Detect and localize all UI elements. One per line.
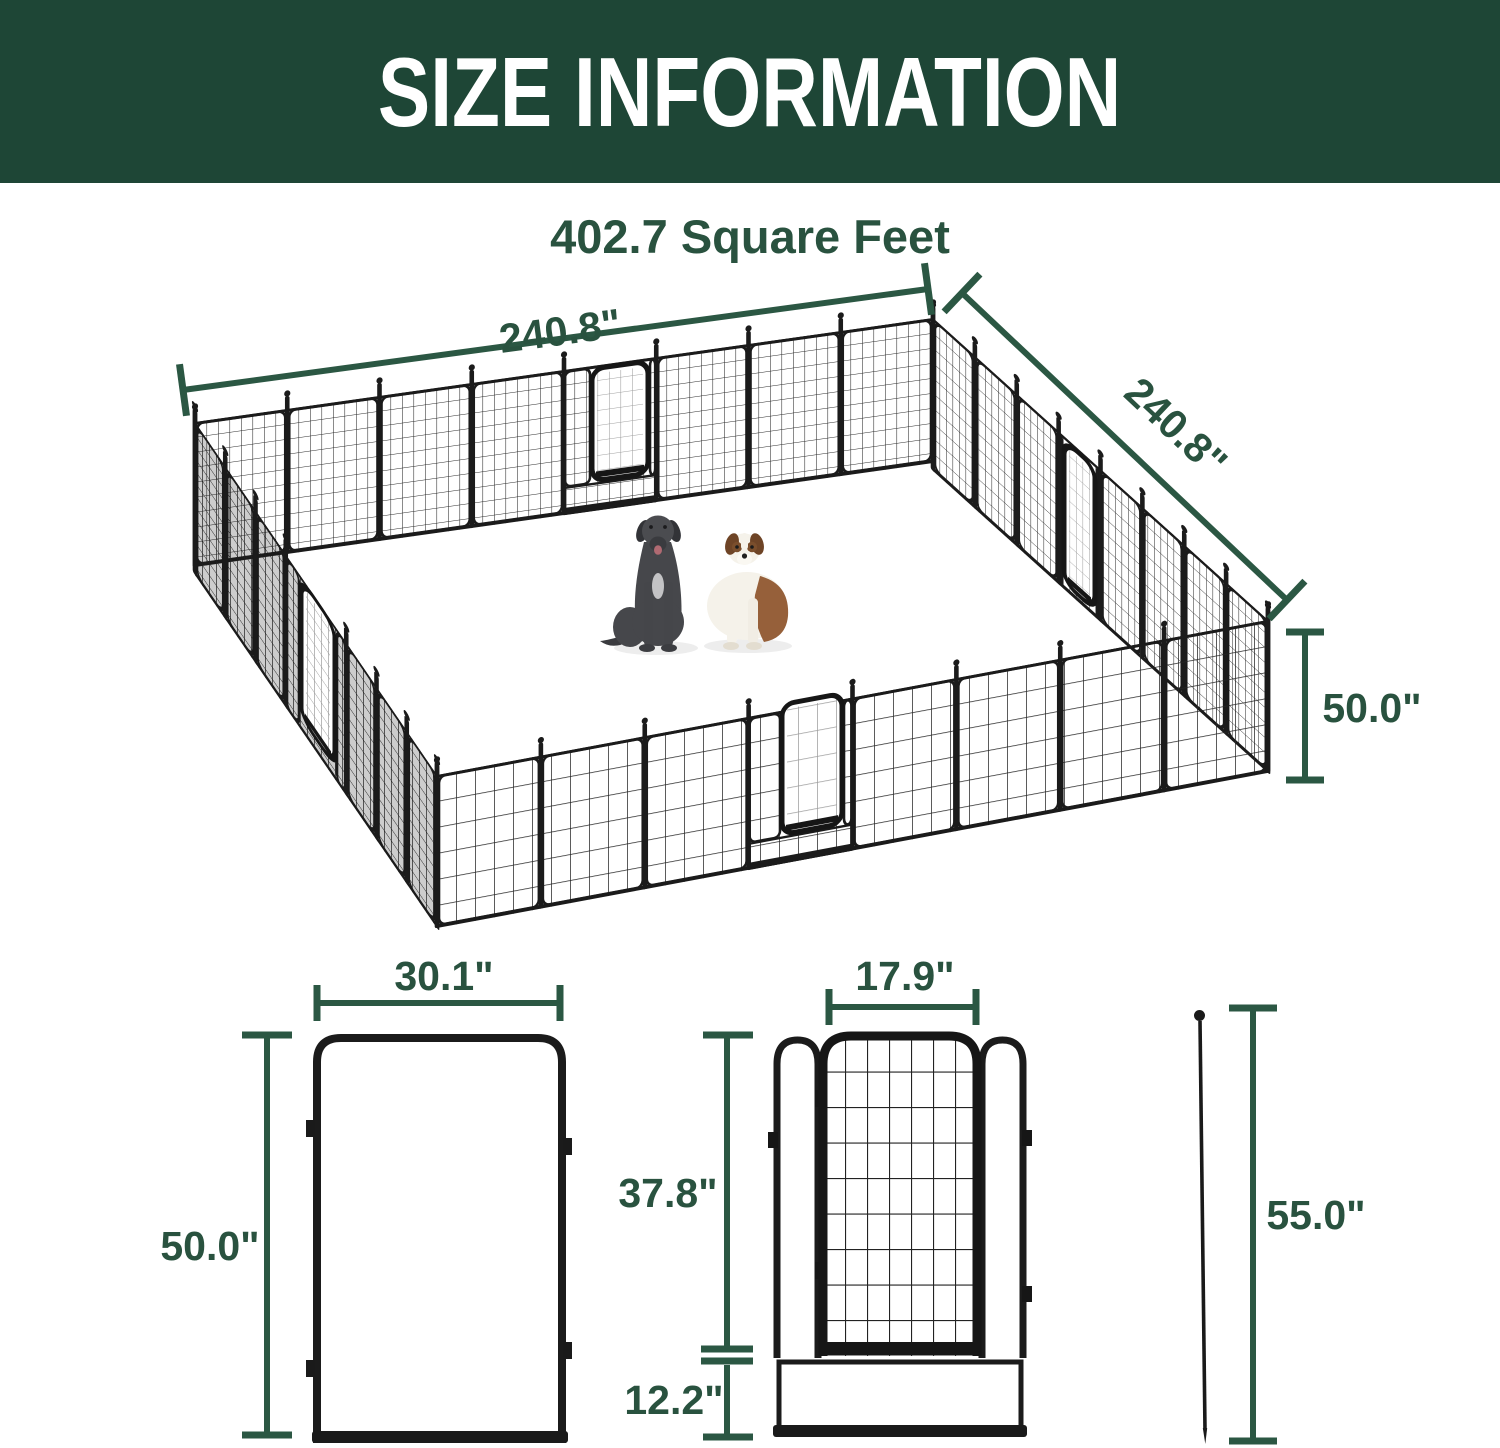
gate-bottom-height-dimension: 12.2" xyxy=(624,1365,753,1437)
pen-height-dimension: 50.0" xyxy=(1286,632,1422,780)
panel-front-view xyxy=(317,1038,562,1443)
pen-width-label: 240.8" xyxy=(496,300,623,362)
gate-door-height-label: 37.8" xyxy=(618,1170,717,1216)
panel-width-label: 30.1" xyxy=(394,953,493,999)
stake-diagram: 55.0" xyxy=(1194,1008,1366,1444)
gate-door-width-label: 17.9" xyxy=(855,953,954,999)
size-information-page: SIZE INFORMATION 402.7 Square Feet xyxy=(0,0,1500,1448)
gate-door-height-dimension: 37.8" xyxy=(618,1035,753,1361)
saint-bernard-dog xyxy=(707,532,788,650)
panel-diagram: 30.1" 50.0" xyxy=(160,953,572,1443)
gate-door-width-dimension: 17.9" xyxy=(829,953,976,1025)
pen-depth-label: 240.8" xyxy=(1116,368,1236,485)
size-diagram: 240.8" 240.8" 50.0" 30.1" xyxy=(0,0,1500,1448)
panel-width-dimension: 30.1" xyxy=(317,953,560,1021)
stake-length-label: 55.0" xyxy=(1266,1192,1365,1238)
pen-height-label: 50.0" xyxy=(1322,685,1421,731)
gate-diagram: 17.9" 37.8" 12.2" xyxy=(618,953,1032,1437)
dogs-illustration xyxy=(600,516,792,656)
gate-right-side-panel xyxy=(982,1040,1023,1358)
gate-bottom-section xyxy=(779,1362,1021,1434)
gate-door-front-view xyxy=(823,1036,977,1356)
pen-wall-se xyxy=(434,601,1271,929)
gate-bottom-height-label: 12.2" xyxy=(624,1377,723,1423)
stake-length-dimension: 55.0" xyxy=(1229,1008,1366,1441)
gate-left-side-panel xyxy=(777,1040,818,1358)
panel-height-label: 50.0" xyxy=(160,1223,259,1269)
great-dane-dog xyxy=(600,516,684,653)
ground-stake xyxy=(1194,1010,1207,1444)
panel-height-dimension: 50.0" xyxy=(160,1035,292,1435)
